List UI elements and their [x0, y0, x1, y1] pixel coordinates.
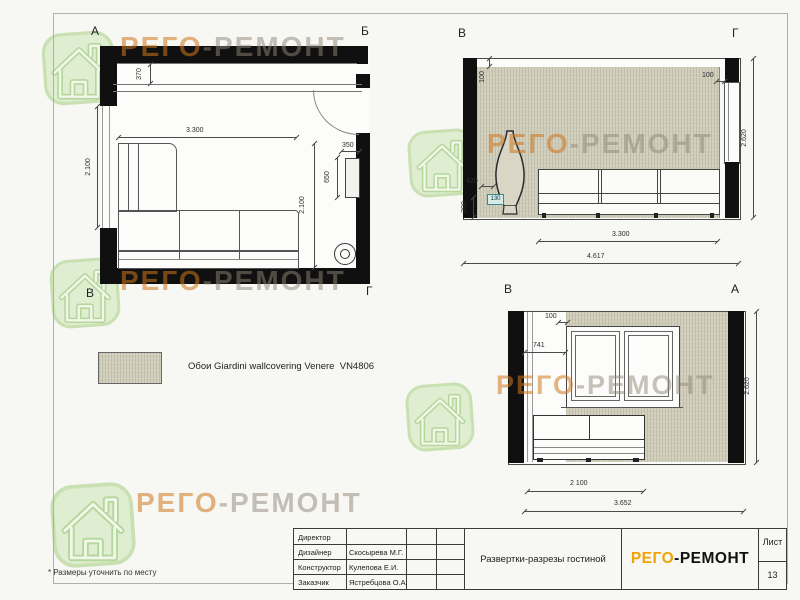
- dimension-line: [314, 143, 315, 268]
- cabinet-line: [534, 453, 644, 454]
- dimension-label: 2.100: [85, 158, 93, 176]
- dimension-line: [473, 197, 474, 218]
- dimension-label: 420: [466, 178, 478, 186]
- brand-watermark-first: РЕГО: [120, 31, 203, 62]
- elevation-corner-label: В: [458, 27, 466, 39]
- dimension-line: [489, 58, 490, 67]
- dimension-label: 200: [461, 201, 469, 213]
- window-sill: [561, 407, 683, 408]
- plan-corner-label: А: [91, 25, 99, 37]
- sheet-label: Лист: [759, 537, 786, 547]
- brand-watermark-rest: -РЕМОНТ: [576, 370, 715, 400]
- dimension-line: [558, 322, 568, 323]
- dimension-line: [538, 241, 718, 242]
- dimension-line: [527, 491, 644, 492]
- title-block-line: [758, 561, 786, 562]
- dimension-label: 100: [479, 71, 487, 83]
- dimension-line: [753, 58, 754, 218]
- dimension-line: [716, 81, 725, 82]
- sofa-cushion-divider: [660, 170, 661, 203]
- cabinet-foot: [537, 458, 543, 462]
- drawing-title: Развертки-разрезы гостиной: [465, 529, 621, 589]
- title-block-line: [294, 559, 464, 560]
- title-block-name: Скосырева М.Г.: [349, 548, 403, 557]
- title-block-line: [294, 544, 464, 545]
- cabinet-elevation: [533, 415, 645, 460]
- cabinet-door-divider: [589, 416, 590, 439]
- dimension-label: 4.617: [587, 253, 605, 261]
- title-block: Директор Дизайнер Конструктор Заказчик С…: [293, 528, 787, 590]
- drawing-sheet: А Б В Г: [0, 0, 800, 600]
- sofa-seat-divider: [179, 251, 180, 259]
- dimension-line: [481, 186, 494, 187]
- sofa-seat-divider: [179, 211, 180, 251]
- dimension-line: [463, 263, 739, 264]
- brand-watermark: РЕГО-РЕМОНТ: [487, 130, 713, 158]
- brand-watermark-rest: -РЕМОНТ: [219, 487, 362, 518]
- dimension-label: 741: [533, 342, 545, 350]
- brand-logo-rest: -РЕМОНТ: [674, 550, 749, 568]
- sofa-cushion-divider: [657, 170, 658, 203]
- sofa-elevation: [538, 169, 720, 215]
- dimension-line: [150, 64, 151, 84]
- brand-watermark: РЕГО-РЕМОНТ: [120, 267, 346, 295]
- dimension-label: 650: [324, 171, 332, 183]
- plan-corner-label: В: [86, 287, 94, 299]
- floor-lamp-inner: [340, 249, 350, 259]
- brand-watermark-first: РЕГО: [487, 128, 570, 159]
- brand-watermark-rest: -РЕМОНТ: [203, 265, 346, 296]
- cabinet-line: [534, 447, 644, 448]
- brand-logo: РЕГО-РЕМОНТ: [622, 529, 758, 589]
- dimension-label: 2.620: [744, 377, 752, 395]
- dimension-line: [524, 511, 744, 512]
- dimension-label: 3.300: [612, 231, 630, 239]
- dimension-label: 3.652: [614, 500, 632, 508]
- sofa-foot: [710, 213, 714, 218]
- pier-right: [728, 311, 744, 463]
- dimension-line: [524, 352, 566, 353]
- wall-inner-face-line: [117, 63, 357, 64]
- sofa-arm-line: [128, 144, 129, 211]
- sofa-base-line: [539, 203, 719, 204]
- brand-watermark-first: РЕГО: [120, 265, 203, 296]
- console-plan: [345, 158, 360, 198]
- legend-label: Обои Giardini wallcovering Venere VN4806: [188, 361, 374, 372]
- title-block-name: Кулепова Е.И.: [349, 563, 398, 572]
- title-block-role: Конструктор: [298, 563, 341, 572]
- sofa-cushion-divider: [598, 170, 599, 203]
- sheet-number: 13: [759, 570, 786, 580]
- wall-right: [356, 133, 370, 284]
- dimension-label: 2.620: [741, 129, 749, 147]
- elevation-corner-label: В: [504, 283, 512, 295]
- brand-watermark-rest: -РЕМОНТ: [203, 31, 346, 62]
- sofa-chaise-plan: [118, 143, 177, 212]
- sofa-backrest-line: [119, 259, 298, 260]
- door-elevation: [724, 82, 740, 164]
- dimension-label: 370: [136, 68, 144, 80]
- plan-corner-label: Г: [366, 285, 373, 297]
- title-block-role: Директор: [298, 533, 331, 542]
- window-plan-line: [109, 106, 110, 228]
- cabinet-foot: [633, 458, 639, 462]
- dimension-line: [341, 151, 360, 152]
- sofa-foot: [654, 213, 658, 218]
- sofa-seat-divider: [239, 211, 240, 251]
- dimension-line: [337, 157, 338, 198]
- plan-corner-label: Б: [361, 25, 369, 37]
- brand-watermark: РЕГО-РЕМОНТ: [120, 33, 346, 61]
- brand-logo-first: РЕГО: [631, 550, 674, 568]
- elevation-corner-label: Г: [732, 27, 739, 39]
- title-block-role: Заказчик: [298, 578, 329, 587]
- window-plan-line: [102, 106, 103, 228]
- door-edge-line: [728, 83, 729, 161]
- footnote: * Размеры уточнить по месту: [48, 568, 156, 577]
- dimension-line: [756, 311, 757, 463]
- dimension-label: 2.100: [299, 196, 307, 214]
- sofa-foot: [596, 213, 600, 218]
- dimension-label: 100: [545, 313, 557, 321]
- dimension-label: 100: [702, 72, 714, 80]
- brand-watermark: РЕГО-РЕМОНТ: [496, 371, 714, 399]
- brand-watermark-first: РЕГО: [496, 370, 576, 400]
- title-block-line: [294, 574, 464, 575]
- brand-watermark-rest: -РЕМОНТ: [570, 128, 713, 159]
- sofa-arm-line: [138, 144, 139, 211]
- dimension-line: [97, 106, 98, 228]
- title-block-name: Ястребцова О.А.: [349, 578, 408, 587]
- legend-swatch: [98, 352, 162, 384]
- wall-left-upper: [100, 46, 117, 106]
- dimension-label: 3.300: [186, 127, 204, 135]
- title-block-role: Дизайнер: [298, 548, 332, 557]
- sofa-seats-plan: [118, 210, 299, 252]
- pier-right-bottom: [725, 162, 739, 218]
- sofa-cushion-divider: [601, 170, 602, 203]
- cabinet-line: [534, 439, 644, 440]
- elevation-corner-label: А: [731, 283, 739, 295]
- tag-label: 130: [487, 194, 504, 205]
- brand-watermark: РЕГО-РЕМОНТ: [136, 489, 362, 517]
- sofa-foot: [542, 213, 546, 218]
- dimension-line: [118, 137, 297, 138]
- sofa-seat-divider: [239, 251, 240, 259]
- dimension-label: 2 100: [570, 480, 588, 488]
- sofa-seat-line: [539, 193, 719, 194]
- brand-watermark-first: РЕГО: [136, 487, 219, 518]
- cabinet-foot: [586, 458, 591, 462]
